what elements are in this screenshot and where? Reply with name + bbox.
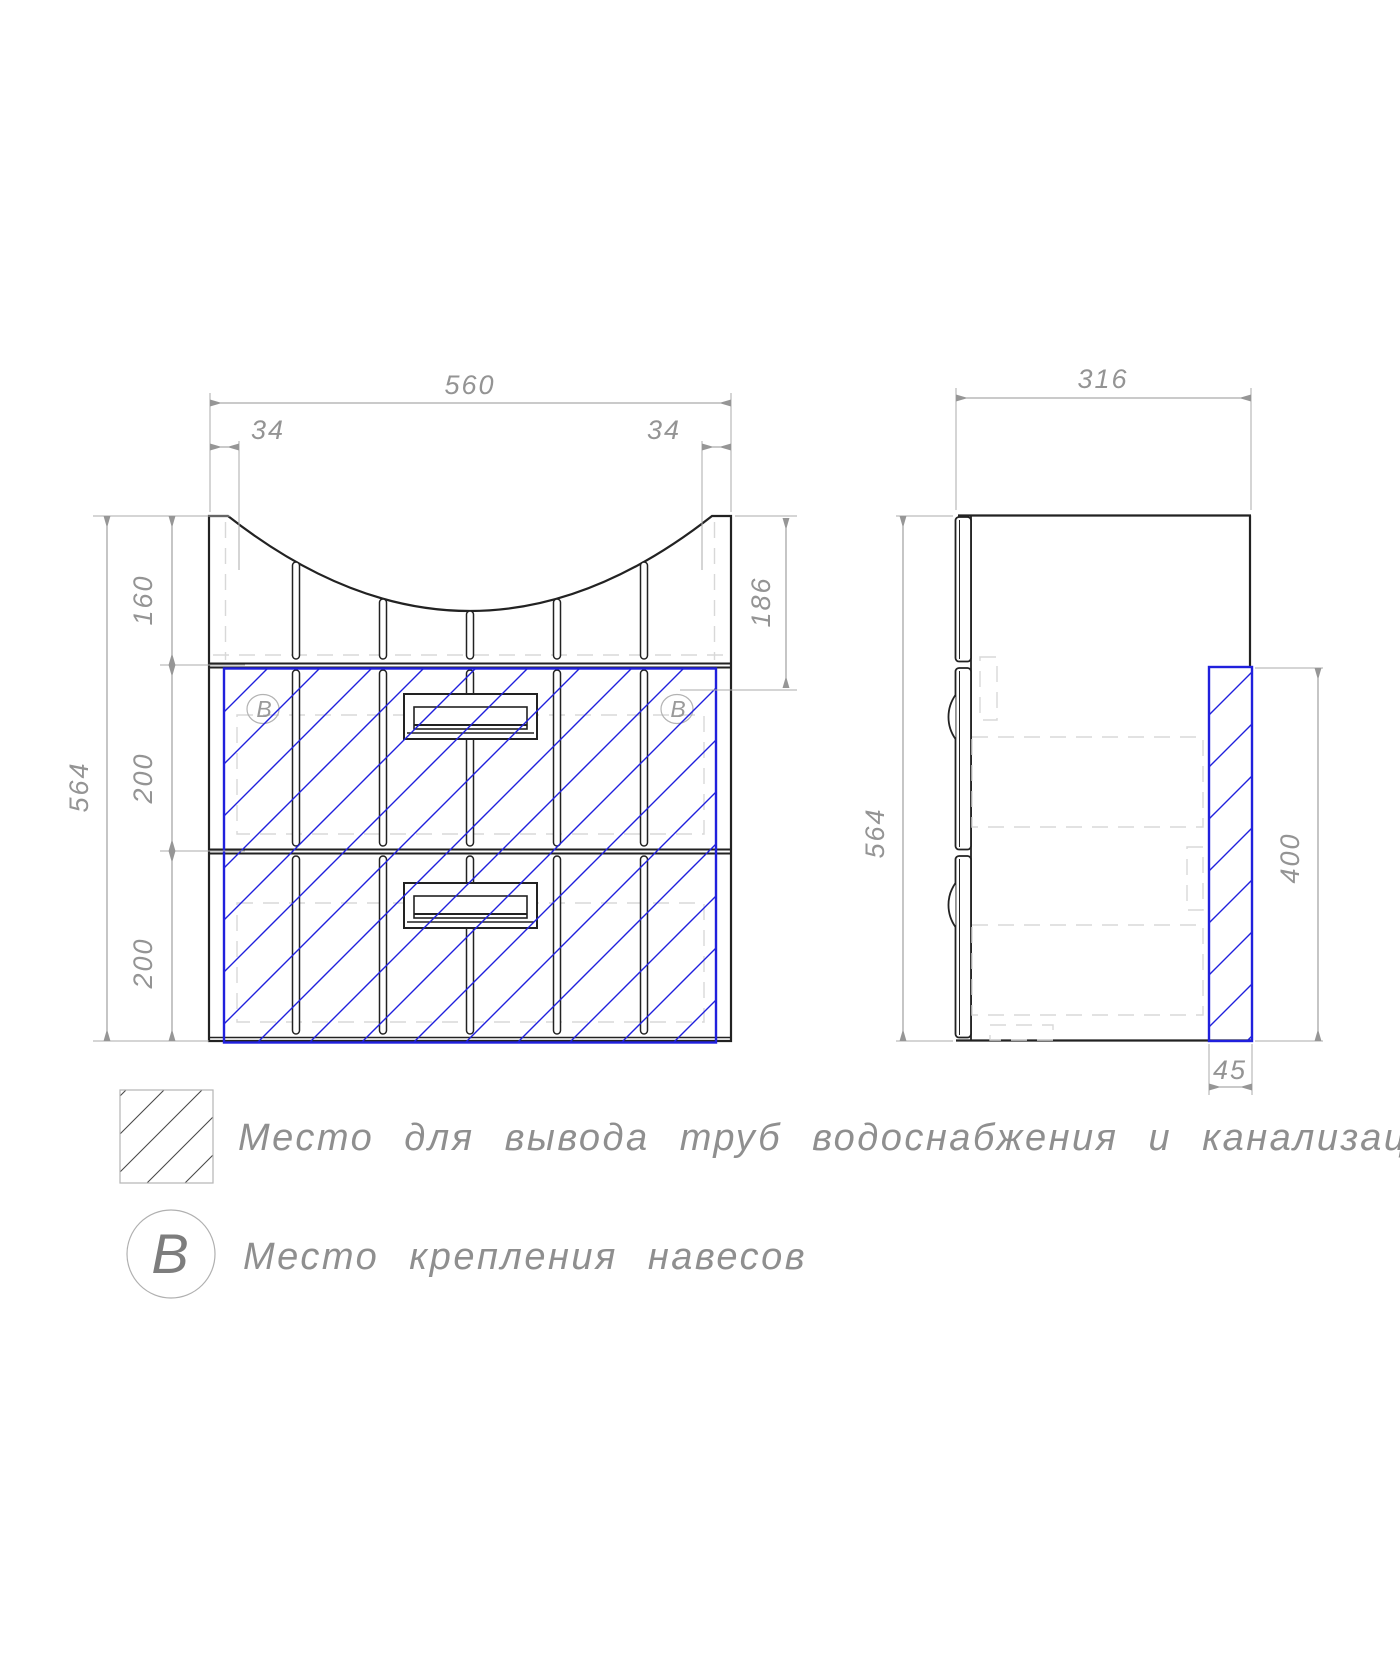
side-pipe-zone [1209, 667, 1252, 1041]
legend-mount-symbol: B [151, 1222, 188, 1285]
legend-pipe-zone-label: Место для вывода труб водоснабжения и ка… [238, 1117, 1400, 1159]
dim-front-offset-right: 34 [647, 415, 681, 445]
dim-front-offset-left: 34 [251, 415, 285, 445]
dim-front-total-height: 564 [64, 761, 94, 812]
dim-front-upper-drawer-height: 200 [128, 752, 158, 804]
dim-front-lower-drawer-height: 200 [128, 937, 158, 989]
dim-side-pipe-zone-width: 45 [1213, 1055, 1247, 1085]
dim-side-depth: 316 [1077, 364, 1128, 394]
drawing-sheet: B B [0, 0, 1400, 1660]
legend-mount-label: Место крепления навесов [243, 1236, 807, 1278]
dim-front-inner-depth: 186 [746, 576, 776, 627]
technical-drawing: B B [0, 0, 1400, 1660]
dim-front-width: 560 [444, 370, 495, 400]
dim-side-pipe-zone-height: 400 [1275, 832, 1305, 883]
dim-front-top-section-height: 160 [128, 574, 158, 625]
dim-side-total-height: 564 [860, 807, 890, 858]
legend-hatch-swatch [120, 1090, 213, 1183]
front-pipe-zone [224, 669, 716, 1043]
